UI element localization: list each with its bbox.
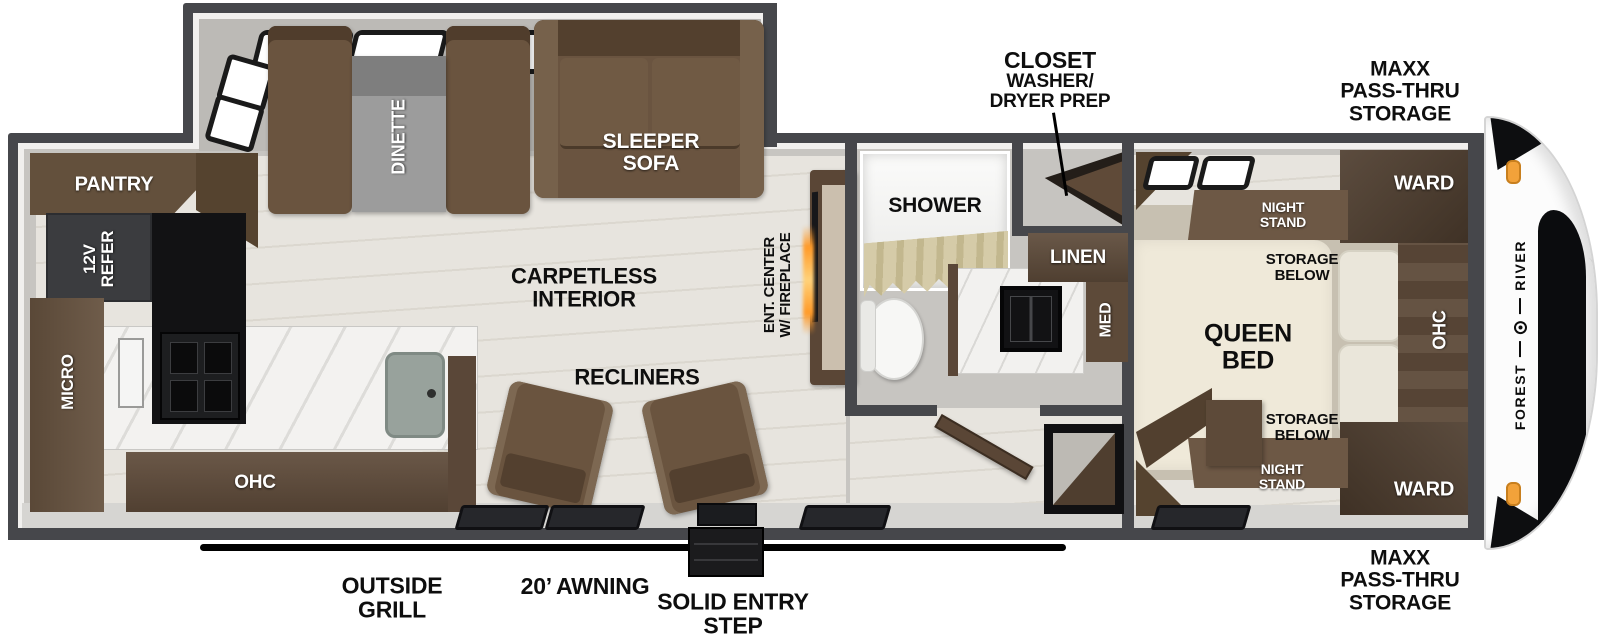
brand-forest-text: FOREST <box>1512 364 1528 430</box>
recliner-seat <box>668 452 756 504</box>
hallway-window <box>798 505 891 530</box>
sofa-armrest-right <box>740 20 764 198</box>
brand-dash <box>1519 298 1521 314</box>
carpetless-interior-label: CARPETLESS INTERIOR <box>511 265 657 312</box>
entry-step-label: SOLID ENTRY STEP <box>657 590 809 639</box>
washer-dryer-closet <box>1023 151 1122 226</box>
storage-below-top-label: STORAGE BELOW <box>1266 252 1339 284</box>
bedroom-side-window <box>1150 505 1251 530</box>
storage-below-bottom-label: STORAGE BELOW <box>1266 412 1339 444</box>
brand-logo-stripe: FOREST RIVER <box>1512 240 1528 430</box>
sofa-armrest-left <box>534 20 558 198</box>
kitchen-end-cabinet <box>448 356 476 512</box>
burner <box>204 342 232 374</box>
sofa-back <box>534 20 764 56</box>
forest-river-logo-icon <box>1514 321 1527 334</box>
kitchen-ohc-label: OHC <box>234 473 276 493</box>
marker-light <box>1506 482 1521 506</box>
step-tread <box>694 543 758 545</box>
refrigerator-label: 12V REFER <box>81 231 117 288</box>
living-window <box>544 505 645 530</box>
front-cap: FOREST RIVER <box>1484 116 1598 550</box>
sleeper-sofa-label: SLEEPER SOFA <box>603 131 700 176</box>
marker-light <box>1506 160 1521 184</box>
dinette-bench-left <box>268 26 352 214</box>
bedroom-window <box>1196 156 1256 190</box>
floorplan: FOREST RIVER PANTRY 12V REFER MICRO OHC … <box>0 0 1600 640</box>
med-label: MED <box>1099 303 1116 338</box>
pantry-label: PANTRY <box>75 174 154 195</box>
kitchen-sink <box>385 352 445 438</box>
brand-wordmark: FOREST RIVER <box>1512 240 1528 430</box>
bedroom-step-box <box>1206 400 1262 466</box>
wardrobe-bottom <box>1340 422 1474 515</box>
kitchen-overhead-cabinet <box>126 452 448 512</box>
closet-callout-title: CLOSET <box>1004 48 1096 72</box>
burner <box>170 380 198 412</box>
bedroom-ohc-label: OHC <box>1430 310 1449 349</box>
brand-dash <box>1519 341 1521 357</box>
closet-partition-wall <box>1012 143 1023 235</box>
bathroom-bottom-wall <box>1040 405 1134 416</box>
burner <box>170 342 198 374</box>
fireplace-glow <box>803 225 814 335</box>
maxx-storage-top-label: MAXX PASS-THRU STORAGE <box>1340 59 1459 126</box>
bathroom-left-wall <box>845 143 857 415</box>
closet-callout-sub: WASHER/ DRYER PREP <box>990 72 1111 112</box>
cap-swoosh <box>1574 258 1598 428</box>
vanity-trim <box>948 264 958 376</box>
entry-step <box>688 527 764 577</box>
dinette-label: DINETTE <box>389 99 408 175</box>
entry-door <box>697 503 757 526</box>
ent-center-face <box>822 185 846 370</box>
headboard-cushion <box>1338 250 1402 342</box>
dinette-bench-right <box>446 26 530 214</box>
recliners-label: RECLINERS <box>574 365 699 388</box>
bedroom-window <box>1142 156 1200 190</box>
living-window <box>454 505 549 530</box>
maxx-storage-bottom-label: MAXX PASS-THRU STORAGE <box>1340 548 1459 615</box>
awning-line <box>200 544 1066 551</box>
shower-label: SHOWER <box>888 195 981 217</box>
night-stand-top-label: NIGHT STAND <box>1260 200 1306 230</box>
awning-label: 20’ AWNING <box>521 574 650 598</box>
ward-top-label: WARD <box>1394 173 1454 194</box>
ward-bottom-label: WARD <box>1394 479 1454 500</box>
recliner-seat <box>499 452 587 504</box>
ent-center-label: ENT. CENTER W/ FIREPLACE <box>762 232 794 337</box>
step-tread <box>694 559 758 561</box>
slideout-right-wall <box>763 3 777 147</box>
bathroom-bottom-wall <box>845 405 937 416</box>
linen-label: LINEN <box>1050 248 1106 268</box>
oven-door <box>118 338 144 408</box>
night-stand-bottom-label: NIGHT STAND <box>1259 462 1305 492</box>
microwave-label: MICRO <box>59 354 77 410</box>
brand-river-text: RIVER <box>1512 240 1528 291</box>
bedroom-steps <box>1053 433 1115 505</box>
bedroom-step-doorway <box>1044 424 1124 514</box>
toilet-tank <box>860 300 876 372</box>
queen-bed-label: QUEEN BED <box>1204 321 1292 374</box>
outside-grill-label: OUTSIDE GRILL <box>342 574 443 623</box>
wardrobe-top <box>1340 150 1474 243</box>
sink-grid <box>1010 296 1052 342</box>
vanity-sink <box>1000 286 1062 352</box>
faucet-icon <box>427 389 436 398</box>
cooktop <box>160 332 240 420</box>
burner <box>204 380 232 412</box>
